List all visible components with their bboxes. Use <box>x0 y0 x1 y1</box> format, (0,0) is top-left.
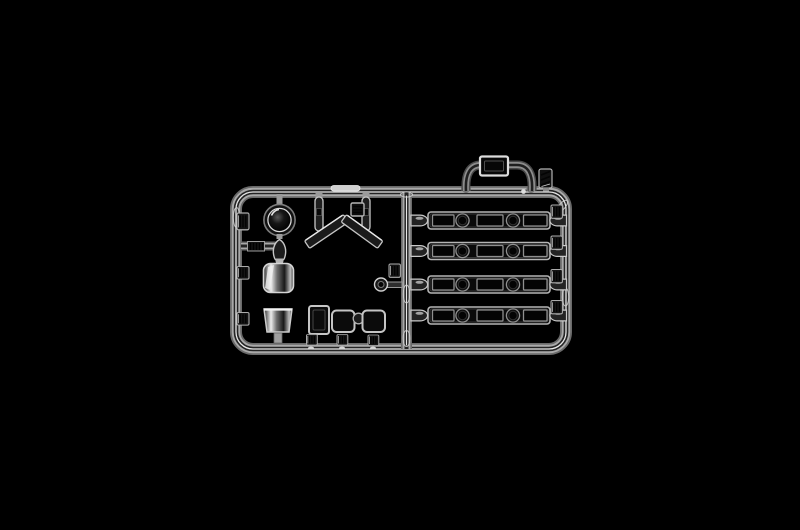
strip-tag-right <box>551 270 562 283</box>
diagonal-ribbed-tag <box>539 169 552 188</box>
window-strip-2 <box>428 243 550 260</box>
dome-collar <box>277 234 283 239</box>
side-window-square <box>332 311 355 333</box>
dome-lens <box>268 208 291 231</box>
window-strip-3 <box>428 276 550 293</box>
rail-tag <box>237 267 249 280</box>
strip-tag-right <box>551 301 562 314</box>
strip-tag-right <box>551 236 562 249</box>
post-band <box>317 209 322 216</box>
gate-mark <box>308 347 314 350</box>
strip-gate-left <box>411 279 428 290</box>
side-window-square <box>363 311 386 333</box>
tag-stem <box>543 188 549 192</box>
window-tag <box>307 335 318 346</box>
dome-pylon <box>273 240 285 262</box>
flat-gate-tab <box>331 186 360 192</box>
lens-stem <box>386 282 402 288</box>
photo-canvas <box>0 0 800 530</box>
rail-tag <box>237 213 249 230</box>
gate-pin <box>521 189 526 194</box>
strip-gate-left <box>411 215 428 226</box>
dome-stem <box>277 194 283 204</box>
cup-stem <box>274 333 282 343</box>
cylinder-lens-lower <box>264 309 292 332</box>
strip-gate-left <box>411 246 428 257</box>
strip-gate-left <box>411 310 428 321</box>
gate-mark <box>339 347 345 350</box>
rail-tag <box>389 264 400 277</box>
window-strip-4 <box>428 307 550 324</box>
strip-tag-right <box>551 205 562 218</box>
sprue-photo <box>0 0 800 530</box>
small-round-lens-core <box>378 282 384 288</box>
window-tag <box>337 335 348 346</box>
window-strip-1 <box>428 212 550 229</box>
gate-mark <box>370 347 376 350</box>
rail-tag <box>237 313 249 326</box>
window-tag <box>368 335 379 346</box>
